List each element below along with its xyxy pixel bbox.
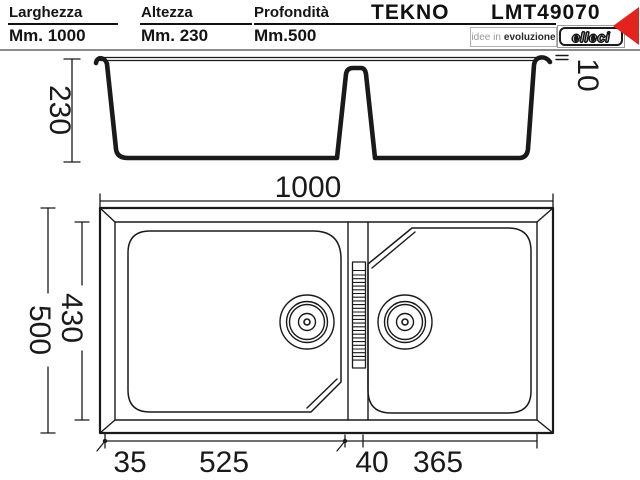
dim-left-bowl-width-label: 525 [199,446,249,479]
left-drain [280,295,334,349]
header-divider-3 [254,23,556,25]
spec-label-height: Altezza [141,4,193,21]
header-bottom-rule [0,49,640,51]
bottom-dim-chain [97,434,537,451]
right-drain [378,295,432,349]
side-view [64,56,568,163]
dim-bowl-depth-label: 430 [55,293,88,343]
sink-technical-drawing: 230 10 [0,0,640,480]
header-divider-2 [140,23,252,25]
dim-divider-width-label: 40 [355,446,388,479]
model-code: LMT49070 [491,1,601,25]
spec-value-depth: Mm.500 [254,26,316,46]
left-bowl-chamfer-line [307,379,337,408]
spec-value-width: Mm. 1000 [9,26,86,46]
left-bowl-outline [128,231,341,412]
dim-rim-label: 10 [571,58,604,91]
dim-height-label: 230 [43,85,76,135]
dim-edge-offset-label: 35 [113,446,146,479]
dim-right-bowl-width-label: 365 [413,446,463,479]
spec-header: Larghezza Altezza Profondità TEKNO LMT49… [0,0,640,52]
tagline-light: idee in [471,32,500,43]
nav-back-arrow-icon[interactable] [613,7,639,45]
series-name: TEKNO [371,1,450,25]
header-divider-1 [8,23,118,25]
divider-rib-strip [353,262,366,368]
divider-rib-hatching [353,271,366,361]
dim-depth-label: 500 [23,305,56,355]
rim-corner-bevels [100,208,553,433]
spec-value-height: Mm. 230 [141,26,208,46]
dim-width-label: 1000 [275,171,342,204]
right-bowl-outline [368,228,531,413]
tagline-box: idee in evoluzione [470,27,557,47]
outer-edge [100,208,553,433]
rim-thickness-ticks [556,56,568,60]
side-view-profile [96,57,550,158]
spec-label-width: Larghezza [9,4,82,21]
spec-label-depth: Profondità [254,4,329,21]
right-bowl-chamfer-line [372,232,415,268]
top-view [41,194,553,451]
tagline-bold: evoluzione [504,32,556,43]
divider-channel [348,222,368,420]
